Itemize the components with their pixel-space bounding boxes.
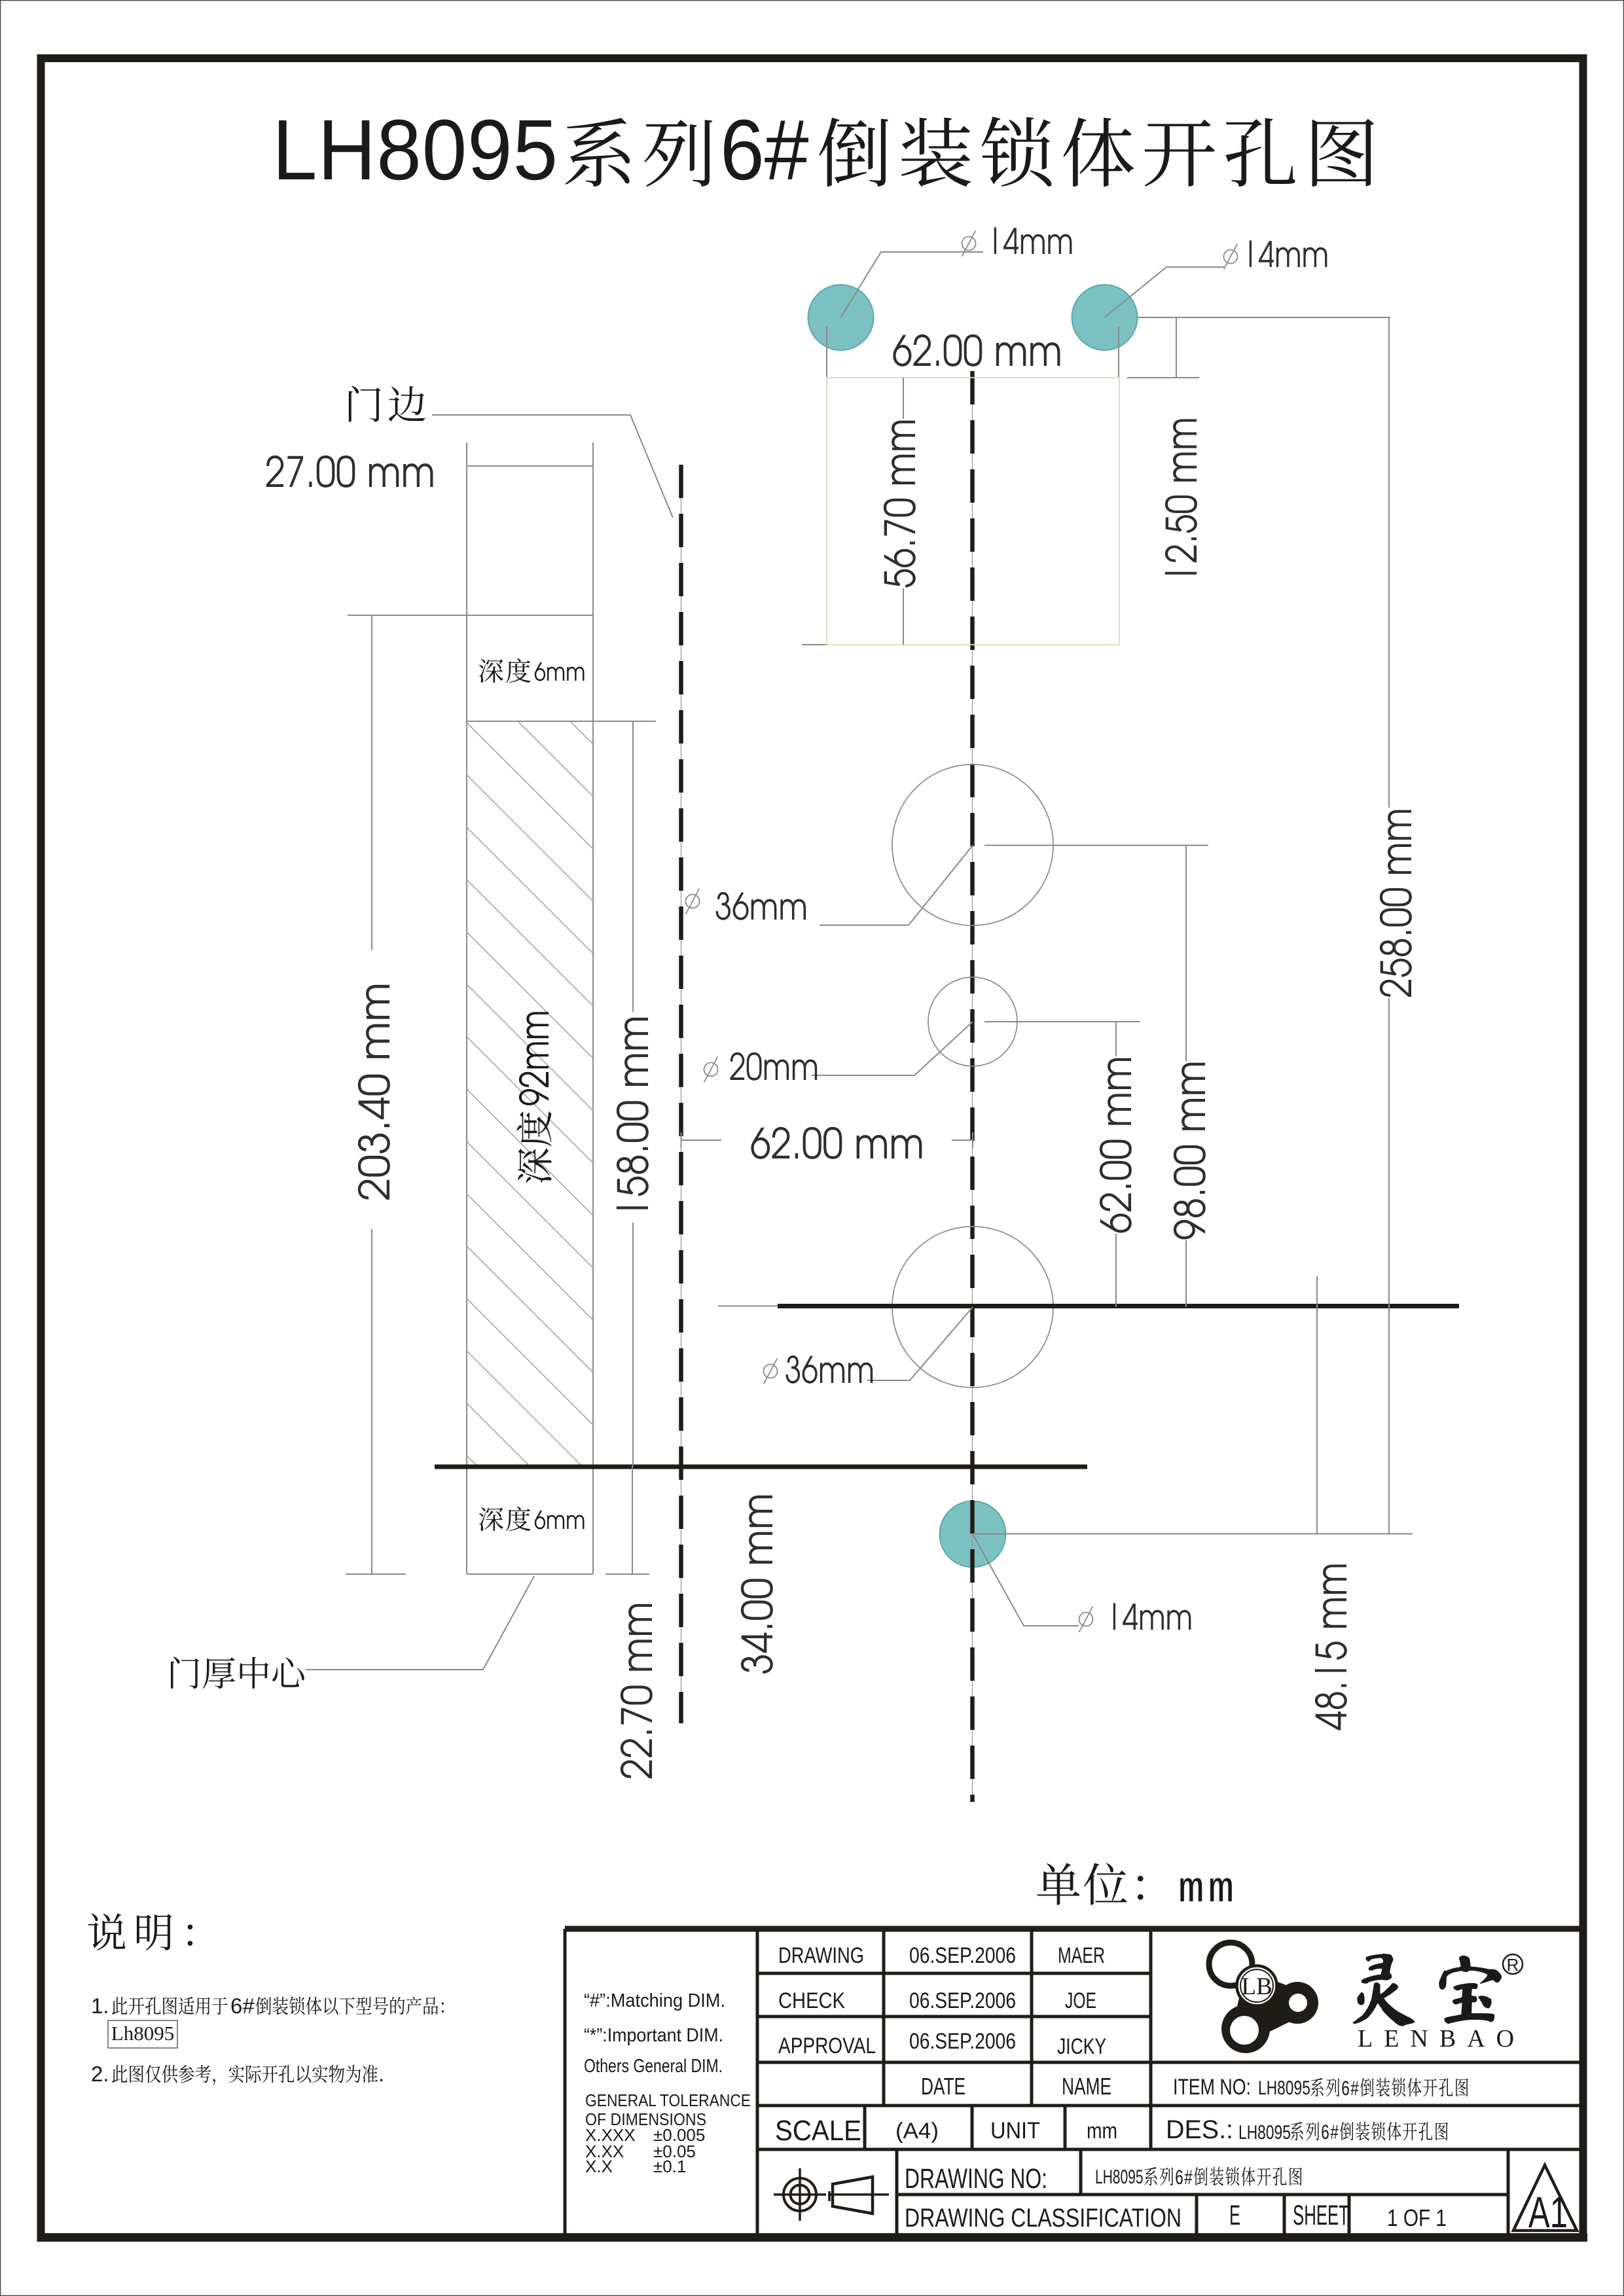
svg-text:APPROVAL: APPROVAL (778, 2034, 876, 2058)
svg-text:mm: mm (1087, 2119, 1117, 2144)
svg-text:GENERAL TOLERANCE: GENERAL TOLERANCE (585, 2090, 751, 2110)
svg-text:A1: A1 (1528, 2188, 1568, 2237)
svg-text:CHECK: CHECK (778, 1988, 845, 2013)
svg-text:“#”:Matching DIM.: “#”:Matching DIM. (584, 1990, 725, 2011)
svg-text:Others General DIM.: Others General DIM. (584, 2056, 723, 2077)
svg-text:UNIT: UNIT (990, 2118, 1040, 2144)
svg-text:E: E (1229, 2200, 1240, 2231)
svg-text:NAME: NAME (1062, 2073, 1111, 2100)
svg-text:(A4): (A4) (895, 2119, 939, 2144)
svg-text:±0.1: ±0.1 (653, 2157, 686, 2176)
svg-text:“*”:Important DIM.: “*”:Important DIM. (584, 2025, 723, 2046)
svg-text:X.X: X.X (585, 2157, 613, 2176)
svg-text:06.SEP.2006: 06.SEP.2006 (909, 2029, 1016, 2054)
svg-text:DRAWING NO:: DRAWING NO: (905, 2163, 1047, 2195)
svg-text:ITEM NO:: ITEM NO: (1173, 2075, 1251, 2100)
svg-text:SCALE: SCALE (775, 2115, 861, 2147)
svg-text:06.SEP.2006: 06.SEP.2006 (909, 1988, 1016, 2013)
svg-text:LB: LB (1241, 1973, 1272, 2000)
svg-text:DRAWING: DRAWING (778, 1943, 864, 1968)
svg-text:DATE: DATE (921, 2073, 965, 2100)
svg-text:JOE: JOE (1065, 1988, 1096, 2013)
svg-text:DRAWING CLASSIFICATION: DRAWING CLASSIFICATION (905, 2204, 1182, 2233)
svg-text:JICKY: JICKY (1057, 2034, 1106, 2059)
svg-text:06.SEP.2006: 06.SEP.2006 (909, 1943, 1016, 1968)
svg-text:R: R (1507, 1955, 1519, 1975)
svg-text:Lh8095: Lh8095 (111, 2022, 174, 2045)
svg-text:1 OF 1: 1 OF 1 (1387, 2204, 1447, 2231)
svg-text:MAER: MAER (1058, 1943, 1105, 1968)
svg-text:SHEET: SHEET (1293, 2200, 1349, 2231)
svg-text:LENBAO: LENBAO (1358, 2025, 1525, 2053)
svg-text:DES.:: DES.: (1166, 2115, 1233, 2144)
